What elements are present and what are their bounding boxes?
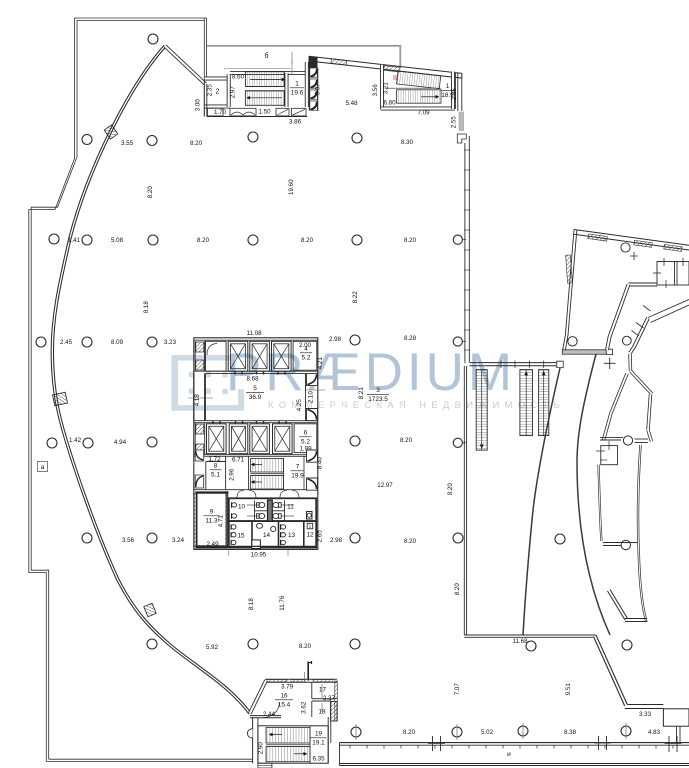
svg-text:3.24: 3.24 — [172, 537, 185, 544]
svg-text:2.97: 2.97 — [230, 86, 237, 99]
svg-text:8.20: 8.20 — [301, 237, 314, 244]
svg-text:8.18: 8.18 — [248, 598, 255, 611]
svg-text:19.1: 19.1 — [312, 739, 325, 746]
svg-text:4.94: 4.94 — [114, 439, 127, 446]
svg-text:и: и — [507, 751, 511, 758]
svg-text:15.4: 15.4 — [278, 701, 291, 708]
svg-text:2.90: 2.90 — [258, 742, 265, 755]
svg-text:11: 11 — [287, 504, 294, 511]
svg-text:3.55: 3.55 — [121, 140, 134, 147]
svg-text:II: II — [393, 75, 397, 82]
svg-text:9: 9 — [210, 509, 214, 516]
svg-text:8.20: 8.20 — [403, 729, 416, 736]
svg-text:5: 5 — [253, 385, 257, 392]
svg-text:2.65: 2.65 — [317, 530, 324, 543]
svg-text:3.56: 3.56 — [372, 84, 379, 97]
svg-text:16: 16 — [280, 693, 288, 700]
svg-text:3.23: 3.23 — [164, 339, 177, 346]
svg-text:13: 13 — [288, 532, 296, 539]
svg-text:11.76: 11.76 — [279, 595, 286, 611]
svg-text:6.35: 6.35 — [312, 756, 325, 763]
svg-text:11.3: 11.3 — [206, 517, 218, 524]
svg-text:3.33: 3.33 — [639, 711, 652, 718]
svg-text:3: 3 — [376, 387, 380, 394]
svg-text:2.35: 2.35 — [451, 88, 458, 101]
svg-text:8.20: 8.20 — [404, 538, 417, 545]
svg-text:7.07: 7.07 — [454, 683, 461, 696]
svg-text:2.44: 2.44 — [263, 711, 276, 718]
svg-text:11.08: 11.08 — [246, 330, 262, 337]
svg-text:7: 7 — [296, 464, 300, 471]
svg-text:15: 15 — [237, 533, 245, 540]
svg-text:8.09: 8.09 — [111, 339, 124, 346]
svg-text:8.30: 8.30 — [401, 139, 414, 146]
svg-text:5.48: 5.48 — [345, 100, 358, 107]
svg-text:8.20: 8.20 — [299, 643, 312, 650]
svg-text:2.45: 2.45 — [60, 339, 73, 346]
svg-text:9.51: 9.51 — [565, 683, 572, 696]
svg-text:1: 1 — [446, 83, 450, 90]
svg-text:а: а — [41, 464, 45, 471]
svg-text:8.20: 8.20 — [147, 186, 154, 199]
svg-text:1: 1 — [295, 81, 299, 88]
svg-text:8.20: 8.20 — [400, 437, 413, 444]
svg-text:3.56: 3.56 — [122, 537, 135, 544]
svg-text:3.21: 3.21 — [383, 82, 390, 95]
svg-text:8.22: 8.22 — [352, 291, 359, 304]
svg-text:12.97: 12.97 — [377, 482, 393, 489]
svg-text:5.02: 5.02 — [481, 729, 494, 736]
svg-text:8.68: 8.68 — [246, 376, 259, 383]
svg-text:8.28: 8.28 — [404, 335, 417, 342]
svg-text:4.83: 4.83 — [648, 729, 661, 736]
svg-text:2.96: 2.96 — [229, 468, 236, 481]
svg-text:19.6: 19.6 — [291, 89, 304, 96]
svg-text:17: 17 — [319, 687, 327, 694]
svg-text:6.71: 6.71 — [232, 457, 245, 464]
svg-text:3.79: 3.79 — [281, 684, 294, 691]
svg-text:5.2: 5.2 — [302, 354, 311, 361]
svg-text:2: 2 — [216, 89, 220, 96]
svg-text:3.00: 3.00 — [195, 99, 202, 112]
svg-text:10.95: 10.95 — [251, 552, 267, 559]
svg-text:1723.5: 1723.5 — [368, 396, 388, 403]
svg-text:12: 12 — [306, 532, 314, 539]
svg-text:10: 10 — [238, 504, 246, 511]
svg-text:19: 19 — [315, 731, 323, 738]
svg-text:2.35: 2.35 — [207, 84, 214, 97]
svg-text:4.71: 4.71 — [218, 515, 225, 528]
svg-text:8.38: 8.38 — [564, 729, 577, 736]
svg-text:3.86: 3.86 — [289, 119, 302, 126]
svg-text:8.20: 8.20 — [454, 583, 461, 596]
svg-text:8.21: 8.21 — [358, 387, 365, 400]
svg-text:7.09: 7.09 — [417, 110, 430, 117]
svg-text:2.55: 2.55 — [451, 116, 458, 129]
svg-text:1.42: 1.42 — [69, 437, 82, 444]
svg-text:1.70: 1.70 — [214, 109, 227, 116]
svg-text:2.98: 2.98 — [329, 336, 342, 343]
svg-text:4.18: 4.18 — [194, 394, 201, 407]
svg-text:4.25: 4.25 — [296, 399, 303, 412]
svg-text:1.50: 1.50 — [258, 109, 271, 116]
svg-text:4.21: 4.21 — [317, 357, 324, 370]
svg-text:8.20: 8.20 — [197, 237, 210, 244]
svg-text:5.08: 5.08 — [111, 237, 124, 244]
svg-text:5.2: 5.2 — [301, 438, 310, 445]
svg-text:б: б — [264, 52, 268, 60]
svg-text:8.20: 8.20 — [190, 140, 203, 147]
svg-text:6: 6 — [304, 430, 308, 437]
svg-text:2.49: 2.49 — [206, 541, 219, 548]
svg-text:1.41: 1.41 — [68, 237, 81, 244]
svg-text:8: 8 — [214, 463, 218, 470]
svg-text:4: 4 — [304, 346, 308, 353]
svg-text:19.60: 19.60 — [288, 179, 295, 195]
svg-text:19.9: 19.9 — [291, 472, 304, 479]
svg-text:2.98: 2.98 — [330, 537, 343, 544]
svg-text:8.18: 8.18 — [143, 301, 150, 314]
svg-text:11.68: 11.68 — [512, 638, 528, 645]
svg-text:14: 14 — [263, 532, 271, 539]
svg-text:8.60: 8.60 — [232, 74, 245, 81]
svg-text:36.9: 36.9 — [249, 394, 262, 401]
svg-text:2.10: 2.10 — [308, 391, 315, 404]
svg-text:5.1: 5.1 — [211, 471, 220, 478]
svg-text:5.92: 5.92 — [206, 644, 219, 651]
svg-text:6.80: 6.80 — [383, 100, 396, 107]
svg-text:8.20: 8.20 — [447, 483, 454, 496]
svg-text:3.62: 3.62 — [301, 701, 308, 714]
svg-text:8.20: 8.20 — [404, 237, 417, 244]
